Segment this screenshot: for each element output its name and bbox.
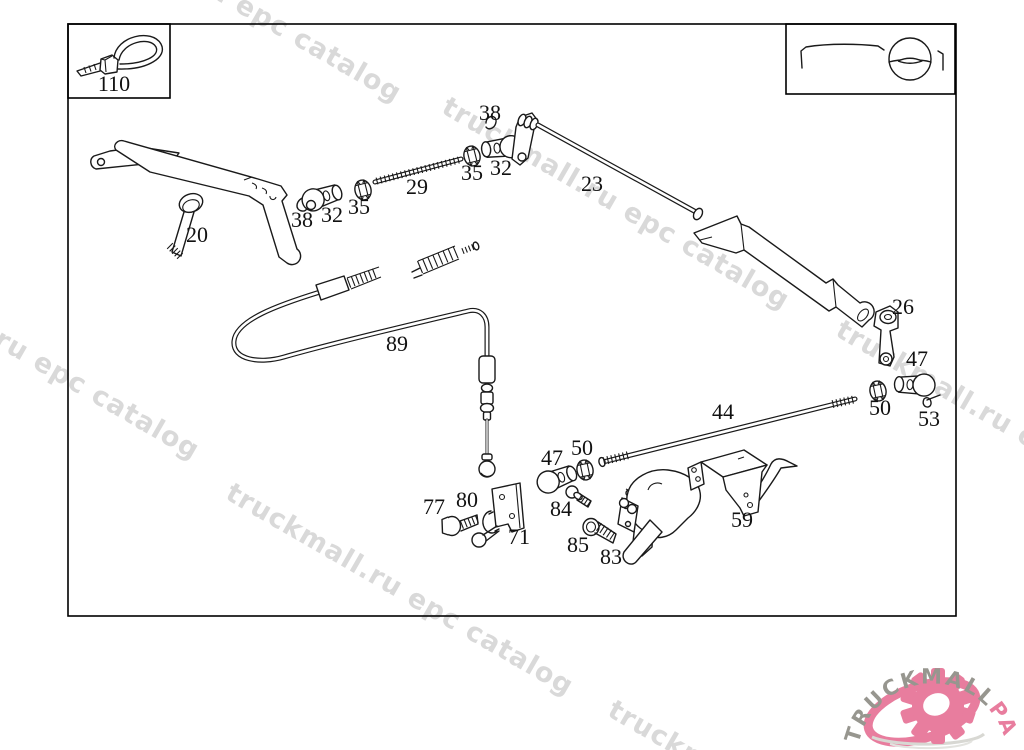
- watermark-text: truckmall.ru epc catalog: [221, 477, 579, 702]
- part-label-59[interactable]: 59: [731, 507, 753, 532]
- part-label-23[interactable]: 23: [581, 171, 603, 196]
- part-label-80[interactable]: 80: [456, 487, 478, 512]
- brake-lever-schematic: [801, 38, 943, 80]
- cable-tie-drawing: [77, 36, 162, 76]
- part-label-38[interactable]: 38: [291, 207, 313, 232]
- part-label-53[interactable]: 53: [918, 406, 940, 431]
- part-label-83[interactable]: 83: [600, 544, 622, 569]
- bracket-59: [688, 450, 767, 516]
- inset-brake-lever-box: [786, 24, 955, 94]
- logo-wordmark: TRUCKMALLPARTS: [0, 0, 1023, 745]
- part-label-32[interactable]: 32: [490, 155, 512, 180]
- part-label-84[interactable]: 84: [550, 496, 572, 521]
- part-label-35[interactable]: 35: [348, 194, 370, 219]
- part-label-50[interactable]: 50: [571, 435, 593, 460]
- part-label-77[interactable]: 77: [423, 494, 445, 519]
- part-label-85[interactable]: 85: [567, 532, 589, 557]
- ball-socket-47-right: [894, 373, 935, 396]
- watermark-text: truckmall.ru epc catalog: [0, 241, 205, 466]
- cable-89: [234, 241, 495, 477]
- parts-diagram-page: truckmall.ru epc catalogtruckmall.ru epc…: [0, 0, 1024, 750]
- part-label-35[interactable]: 35: [461, 160, 483, 185]
- part-label-47[interactable]: 47: [906, 346, 928, 371]
- watermark-layer: truckmall.ru epc catalogtruckmall.ru epc…: [0, 0, 1024, 750]
- part-label-47[interactable]: 47: [541, 445, 563, 470]
- part-label-110[interactable]: 110: [98, 71, 130, 96]
- part-label-44[interactable]: 44: [712, 399, 734, 424]
- nut-50-mid: [575, 459, 595, 482]
- bolt-77: [442, 515, 478, 536]
- part-label-32[interactable]: 32: [321, 202, 343, 227]
- part-label-20[interactable]: 20: [186, 222, 208, 247]
- part-label-26[interactable]: 26: [892, 294, 914, 319]
- logo-text-parts: PARTS: [0, 0, 1023, 740]
- part-label-71[interactable]: 71: [508, 524, 530, 549]
- part-label-29[interactable]: 29: [406, 174, 428, 199]
- part-label-50[interactable]: 50: [869, 395, 891, 420]
- part-label-89[interactable]: 89: [386, 331, 408, 356]
- part-label-38[interactable]: 38: [479, 100, 501, 125]
- bell-crank-lever: [618, 459, 797, 564]
